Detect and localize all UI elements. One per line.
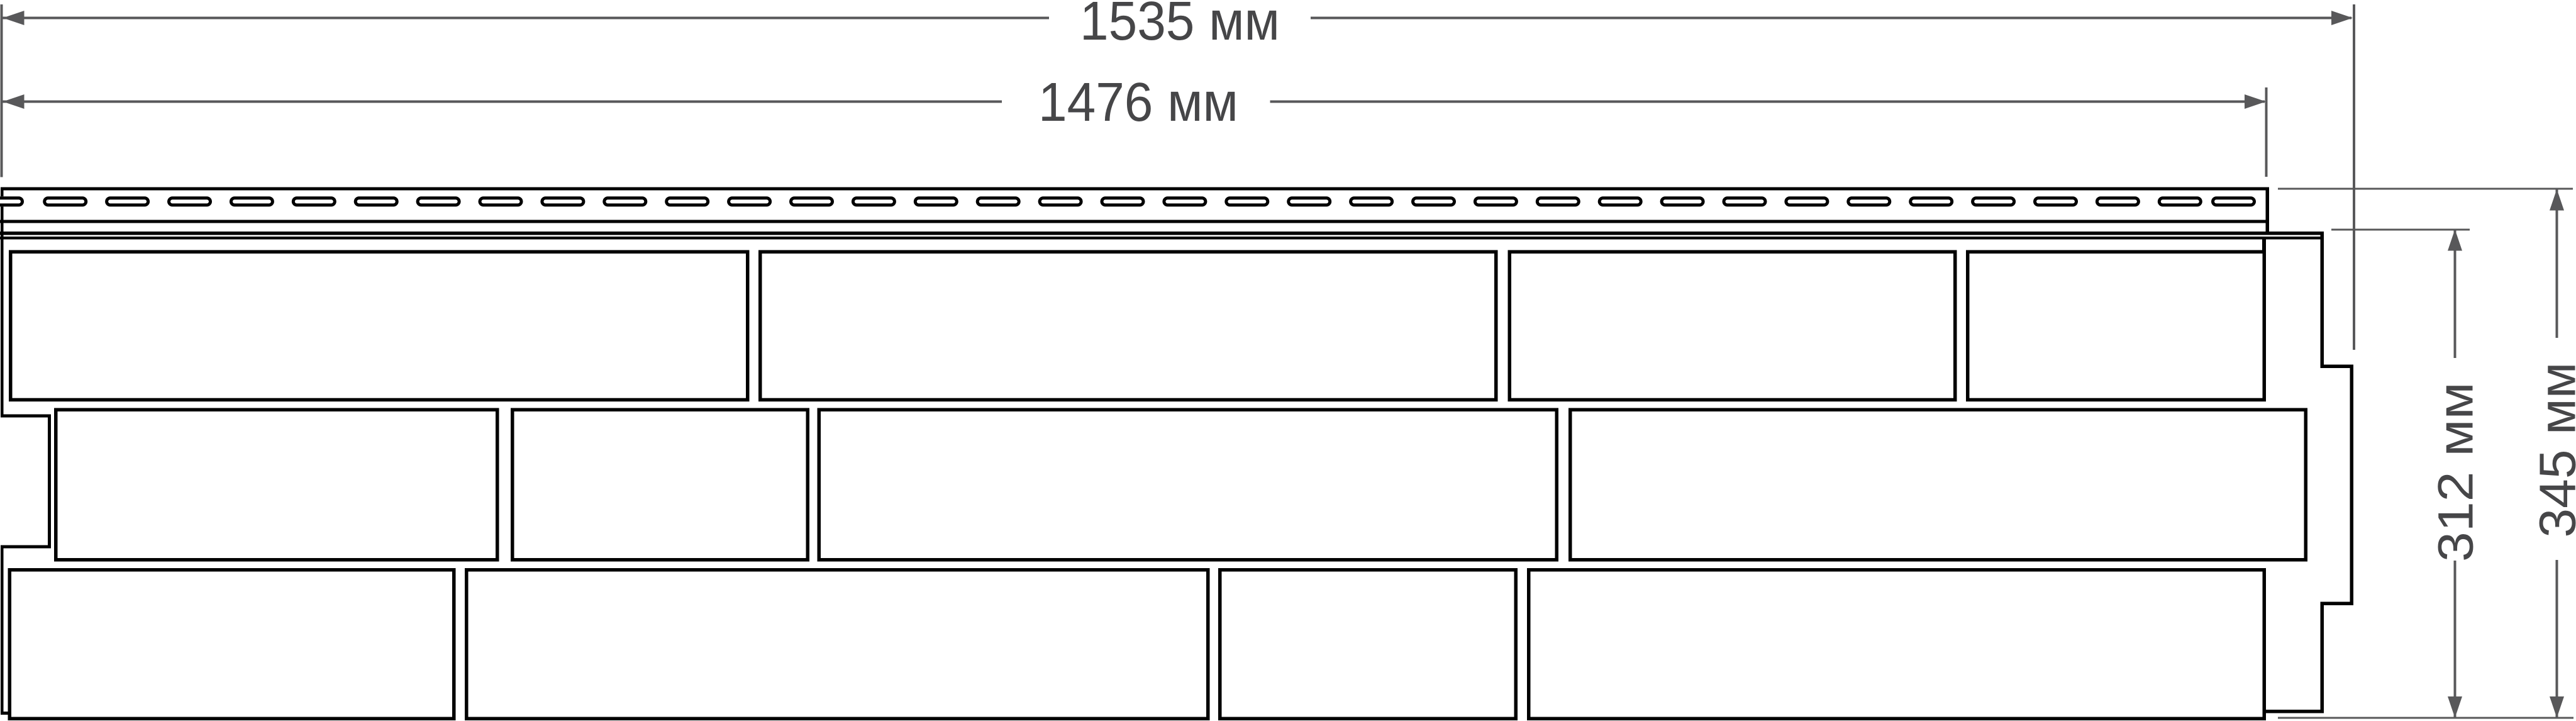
svg-text:1476 мм: 1476 мм [1038, 71, 1238, 133]
svg-text:345 мм: 345 мм [2529, 362, 2576, 538]
svg-text:312 мм: 312 мм [2428, 382, 2484, 562]
svg-text:1535 мм: 1535 мм [1080, 0, 1280, 52]
